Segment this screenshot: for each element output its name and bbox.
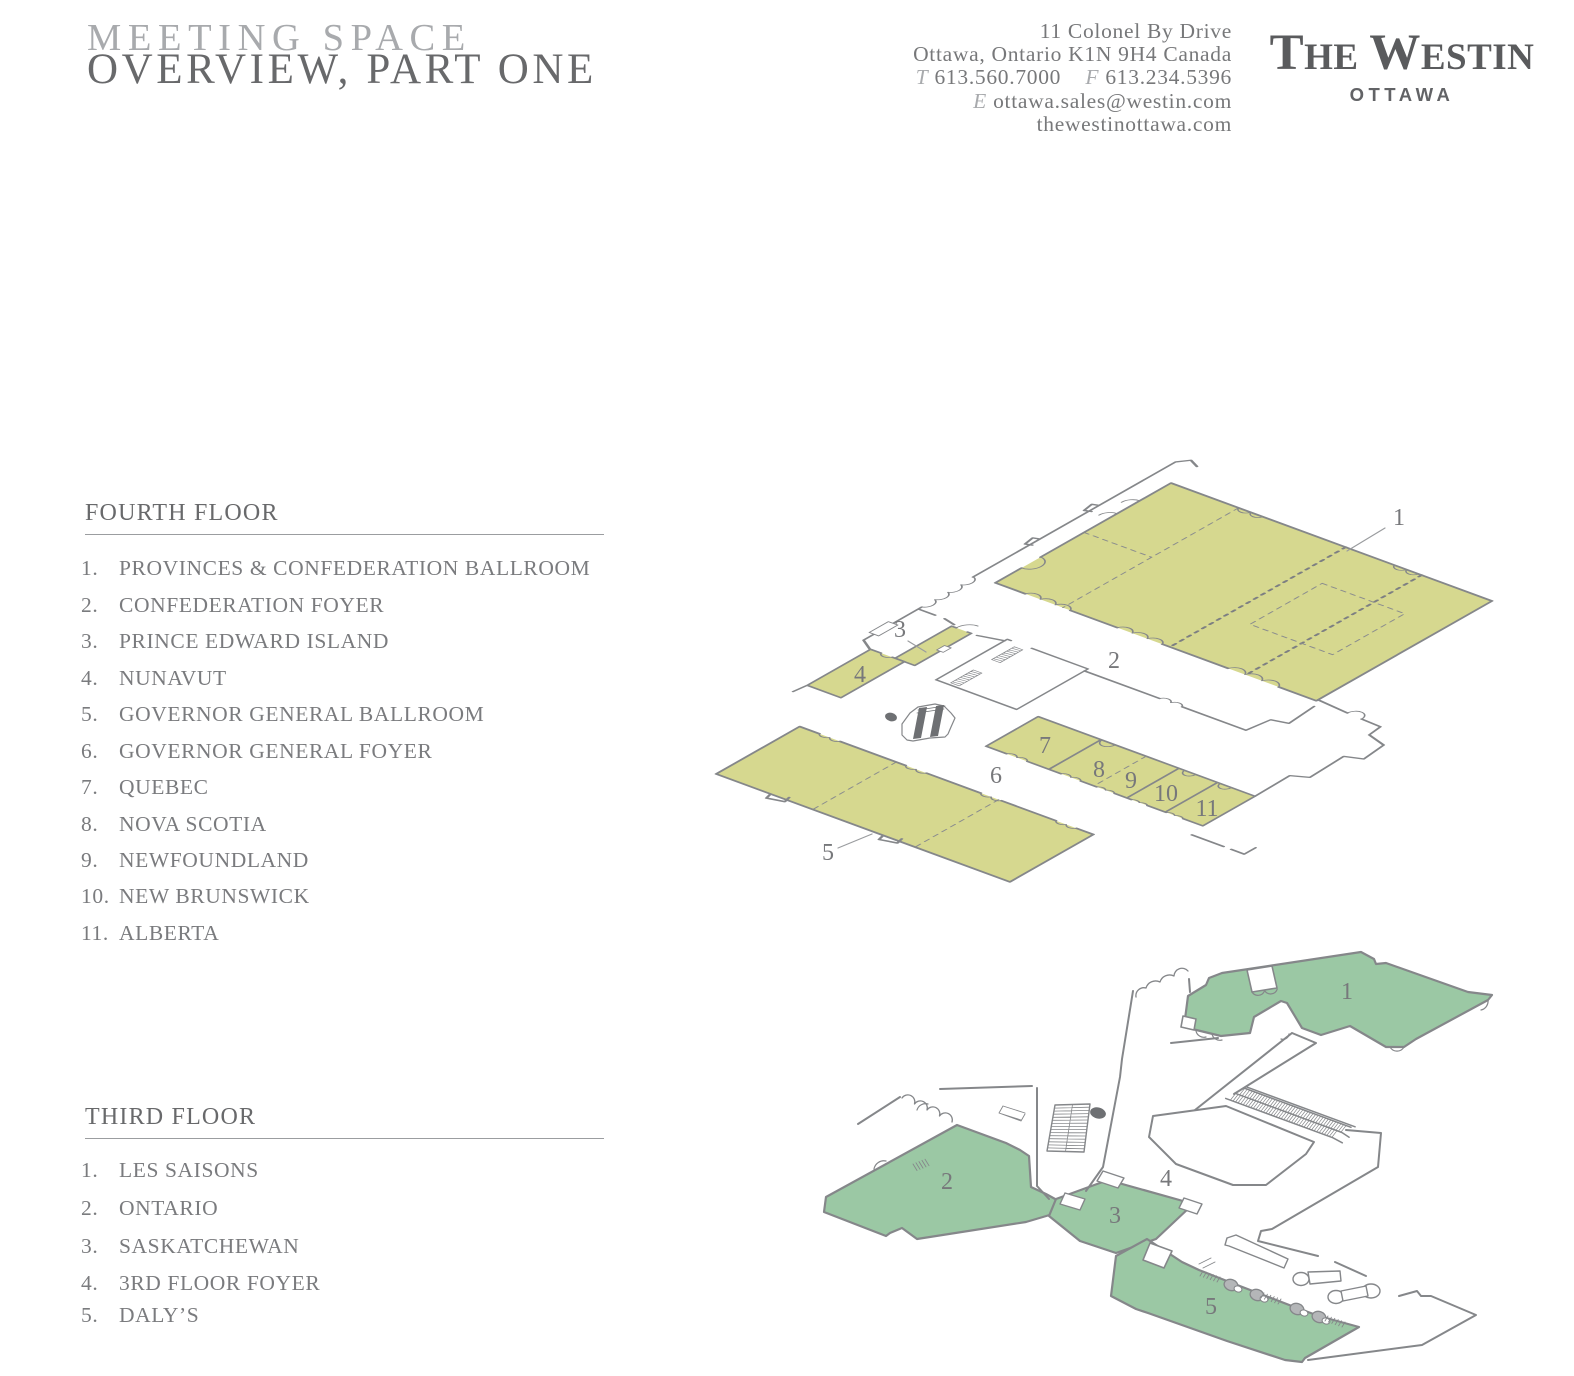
svg-text:8: 8: [1093, 757, 1105, 783]
svg-text:4: 4: [1160, 1166, 1172, 1192]
svg-text:5: 5: [1205, 1294, 1217, 1320]
svg-text:9: 9: [1125, 768, 1137, 794]
svg-text:11: 11: [1195, 796, 1218, 822]
svg-text:10: 10: [1154, 781, 1178, 807]
svg-text:7: 7: [1039, 733, 1051, 759]
svg-text:1: 1: [1341, 979, 1353, 1005]
svg-text:3: 3: [894, 617, 906, 643]
svg-text:6: 6: [990, 763, 1002, 789]
svg-text:1: 1: [1393, 505, 1405, 531]
svg-text:4: 4: [854, 662, 866, 688]
svg-text:2: 2: [1108, 648, 1120, 674]
svg-text:3: 3: [1109, 1203, 1121, 1229]
svg-text:5: 5: [822, 840, 834, 866]
svg-text:2: 2: [941, 1169, 953, 1195]
